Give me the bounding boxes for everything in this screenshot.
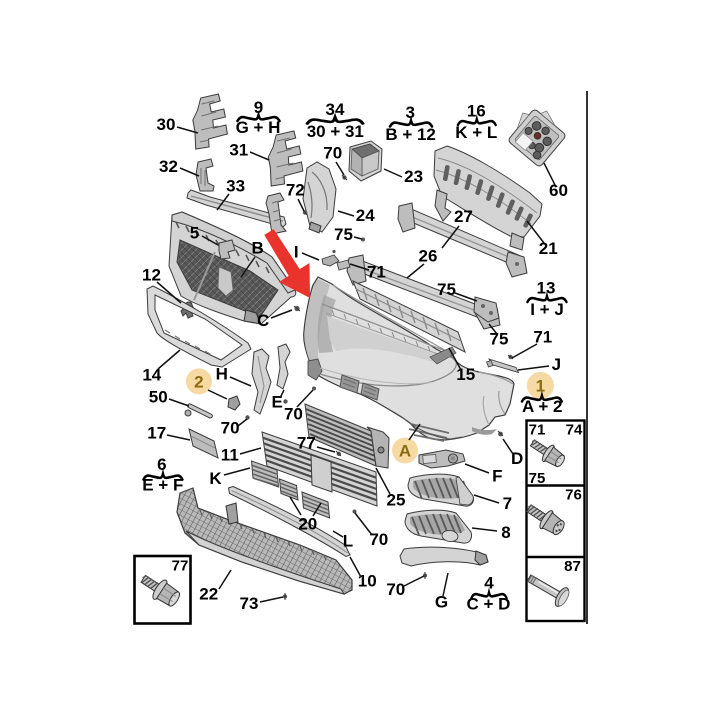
svg-text:5: 5 <box>190 223 199 242</box>
svg-text:20: 20 <box>298 514 317 533</box>
svg-text:E + F: E + F <box>142 476 183 495</box>
svg-text:87: 87 <box>564 558 581 575</box>
svg-text:77: 77 <box>297 434 316 453</box>
svg-text:21: 21 <box>539 239 558 258</box>
svg-text:24: 24 <box>356 206 375 225</box>
svg-text:17: 17 <box>147 424 166 443</box>
svg-text:G + H: G + H <box>236 118 281 137</box>
svg-text:B + 12: B + 12 <box>385 125 436 144</box>
svg-text:60: 60 <box>549 181 568 200</box>
svg-text:22: 22 <box>199 585 218 604</box>
svg-text:G: G <box>435 593 448 612</box>
svg-text:1: 1 <box>536 376 545 395</box>
svg-text:K: K <box>209 469 222 488</box>
svg-text:2: 2 <box>194 372 203 391</box>
svg-text:71: 71 <box>367 263 386 282</box>
svg-text:76: 76 <box>565 487 582 504</box>
svg-text:A + 2: A + 2 <box>522 397 562 416</box>
svg-text:75: 75 <box>490 330 509 349</box>
svg-text:I + J: I + J <box>530 300 564 319</box>
svg-text:30: 30 <box>157 115 176 134</box>
svg-text:71: 71 <box>529 422 546 439</box>
svg-text:8: 8 <box>501 523 510 542</box>
svg-text:B: B <box>252 239 264 258</box>
svg-text:75: 75 <box>437 280 456 299</box>
svg-text:72: 72 <box>286 180 305 199</box>
svg-text:70: 70 <box>284 405 303 424</box>
svg-text:10: 10 <box>358 572 377 591</box>
svg-text:77: 77 <box>172 558 189 575</box>
svg-text:C: C <box>257 311 269 330</box>
svg-text:31: 31 <box>229 141 248 160</box>
svg-text:D: D <box>511 449 523 468</box>
svg-text:13: 13 <box>537 279 556 298</box>
svg-text:71: 71 <box>533 327 552 346</box>
svg-text:A: A <box>399 442 411 461</box>
svg-text:23: 23 <box>404 167 423 186</box>
svg-text:K + L: K + L <box>455 123 497 142</box>
svg-text:70: 70 <box>369 530 388 549</box>
svg-text:12: 12 <box>142 266 161 285</box>
svg-text:70: 70 <box>386 580 405 599</box>
svg-text:32: 32 <box>159 157 178 176</box>
svg-text:73: 73 <box>240 594 259 613</box>
svg-text:74: 74 <box>566 422 583 439</box>
svg-text:70: 70 <box>323 144 342 163</box>
svg-text:30 + 31: 30 + 31 <box>307 122 364 141</box>
svg-text:33: 33 <box>226 177 245 196</box>
svg-text:27: 27 <box>454 207 473 226</box>
svg-text:I: I <box>294 243 299 262</box>
svg-text:L: L <box>343 531 353 550</box>
svg-text:75: 75 <box>529 470 546 487</box>
svg-text:J: J <box>552 355 561 374</box>
svg-text:75: 75 <box>334 225 353 244</box>
svg-text:50: 50 <box>149 388 168 407</box>
svg-text:26: 26 <box>419 246 438 265</box>
svg-text:11: 11 <box>221 445 239 464</box>
svg-text:F: F <box>492 467 502 486</box>
svg-text:C + D: C + D <box>467 595 511 614</box>
svg-text:6: 6 <box>157 455 166 474</box>
svg-text:70: 70 <box>221 419 240 438</box>
svg-text:7: 7 <box>503 494 512 513</box>
svg-text:H: H <box>216 365 228 384</box>
